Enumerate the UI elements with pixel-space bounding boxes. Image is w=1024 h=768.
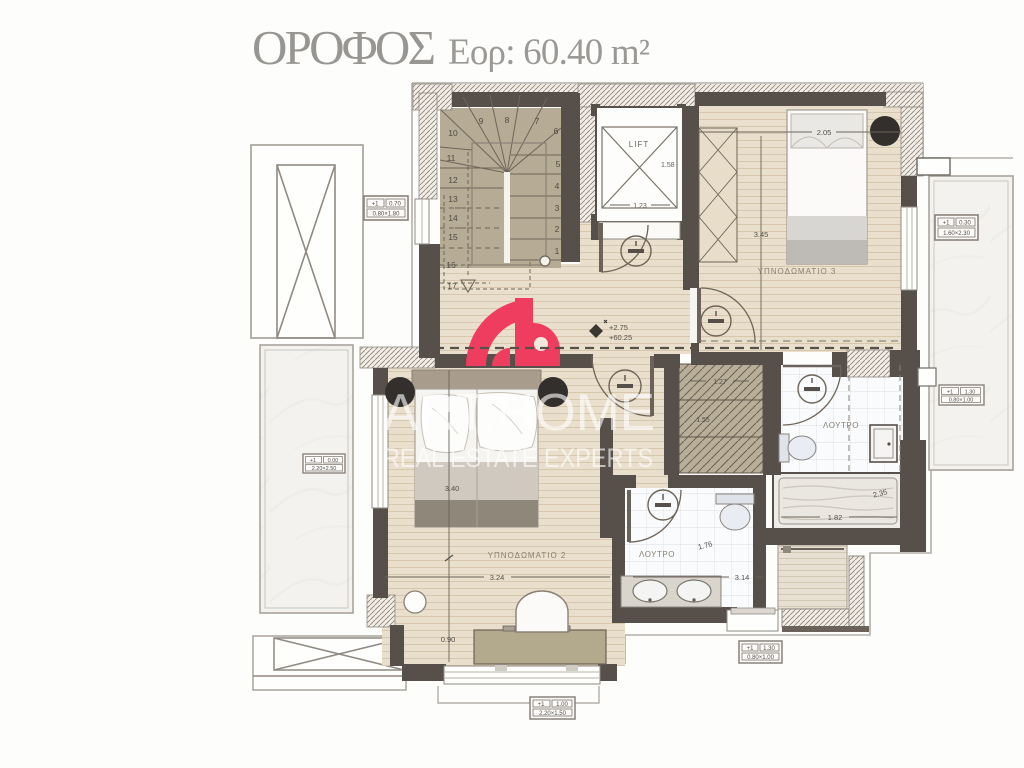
svg-text:+1: +1 [538,702,546,708]
svg-text:2: 2 [555,224,560,234]
svg-text:0.80×1.00: 0.80×1.00 [747,655,775,661]
svg-text:14: 14 [448,213,458,223]
svg-text:+1: +1 [310,458,316,464]
svg-text:3.24: 3.24 [490,573,505,582]
svg-text:2.05: 2.05 [817,128,832,137]
svg-text:1.27: 1.27 [713,379,727,386]
svg-text:+60.25: +60.25 [609,333,632,342]
svg-text:0.80×1.80: 0.80×1.80 [373,212,401,218]
svg-text:11: 11 [447,153,456,163]
svg-text:ΛΟΥΤΡΟ: ΛΟΥΤΡΟ [639,550,675,559]
svg-text:7: 7 [535,116,540,126]
svg-text:0.90: 0.90 [441,635,456,644]
svg-text:+1: +1 [947,390,953,396]
svg-text:3: 3 [555,203,560,213]
svg-text:3.14: 3.14 [735,573,750,582]
svg-text:2.20×2.50: 2.20×2.50 [312,466,337,472]
svg-text:15: 15 [448,232,458,242]
svg-text:12: 12 [448,175,458,185]
svg-text:9: 9 [479,116,484,126]
svg-text:4: 4 [555,181,560,191]
svg-text:ΥΠΝΟΔΩΜΑΤΙΟ 3: ΥΠΝΟΔΩΜΑΤΙΟ 3 [758,267,837,276]
svg-text:1.00: 1.00 [556,702,568,708]
svg-text:5: 5 [556,159,561,169]
svg-text:1.58: 1.58 [661,162,675,169]
svg-text:10: 10 [448,128,458,138]
svg-text:0.30: 0.30 [959,221,971,227]
svg-text:8: 8 [505,115,510,125]
svg-text:LIFT: LIFT [629,140,649,149]
svg-text:+2.75: +2.75 [609,323,628,332]
svg-text:ΟΡΟΦΟΣ: ΟΡΟΦΟΣ [252,20,436,75]
svg-text:1.55: 1.55 [696,417,710,424]
svg-text:2.20×1.50: 2.20×1.50 [539,711,567,717]
svg-text:1.30: 1.30 [965,390,976,396]
svg-text:Εορ: 60.40 m²: Εορ: 60.40 m² [448,32,650,73]
svg-text:1.60×2.30: 1.60×2.30 [943,231,971,237]
svg-text:+1: +1 [372,202,380,208]
svg-text:1.30: 1.30 [763,646,775,652]
svg-text:3.45: 3.45 [754,230,769,239]
svg-text:+1: +1 [943,221,951,227]
svg-text:0.00: 0.00 [328,458,339,464]
svg-text:16: 16 [446,260,456,270]
svg-text:REAL ESTATE EXPERTS: REAL ESTATE EXPERTS [383,443,653,473]
svg-text:+1: +1 [747,646,755,652]
svg-text:1.82: 1.82 [828,513,843,522]
svg-text:0.70: 0.70 [389,202,401,208]
svg-text:0.80×1.00: 0.80×1.00 [949,398,974,404]
svg-text:ART.HOME: ART.HOME [383,384,655,442]
svg-text:17: 17 [447,281,457,291]
svg-text:1.23: 1.23 [633,203,647,210]
svg-text:ΥΠΝΟΔΩΜΑΤΙΟ 2: ΥΠΝΟΔΩΜΑΤΙΟ 2 [488,551,567,560]
svg-text:1: 1 [555,246,560,256]
svg-text:6: 6 [554,126,559,136]
svg-text:3.40: 3.40 [445,484,460,493]
svg-text:13: 13 [448,194,458,204]
svg-text:ΛΟΥΤΡΟ: ΛΟΥΤΡΟ [823,421,859,430]
